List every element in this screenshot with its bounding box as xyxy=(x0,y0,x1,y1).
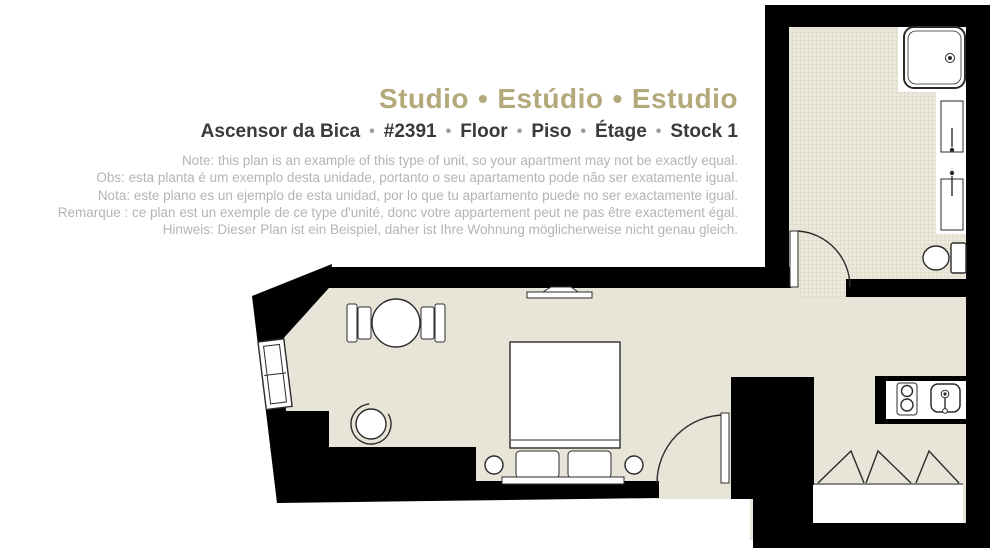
kitchen-counter xyxy=(886,381,966,419)
wardrobe xyxy=(813,484,963,523)
wall-right xyxy=(966,5,990,548)
wall-bathroom-bottom xyxy=(846,279,967,297)
kitchen-sink xyxy=(931,384,960,413)
bed-duvet xyxy=(510,342,620,448)
hob xyxy=(897,383,917,415)
dining-chair-left-seat xyxy=(358,307,371,339)
dining-table-top xyxy=(372,299,420,347)
shower-tray xyxy=(904,27,965,88)
nightstand-right xyxy=(625,456,643,474)
pillow-left xyxy=(516,451,559,478)
dining-chair-right xyxy=(435,304,445,342)
toilet-bowl xyxy=(923,246,949,270)
floorplan-drawing xyxy=(0,0,1000,557)
wall-room-top xyxy=(325,267,791,288)
wall-closet-bottom xyxy=(814,523,990,548)
wall-bathroom-left xyxy=(765,5,789,269)
nightstand-left xyxy=(485,456,503,474)
dining-chair-left xyxy=(347,304,357,342)
floorplan-page: Studio•Estúdio•Estudio Ascensor da Bica•… xyxy=(0,0,1000,557)
dining-chair-right-seat xyxy=(421,307,434,339)
toilet-tank xyxy=(951,243,966,273)
wall-entry-pier xyxy=(731,377,814,548)
pillow-right xyxy=(568,451,611,478)
wall-bathroom-top xyxy=(765,5,990,27)
bed-headboard xyxy=(502,477,624,484)
